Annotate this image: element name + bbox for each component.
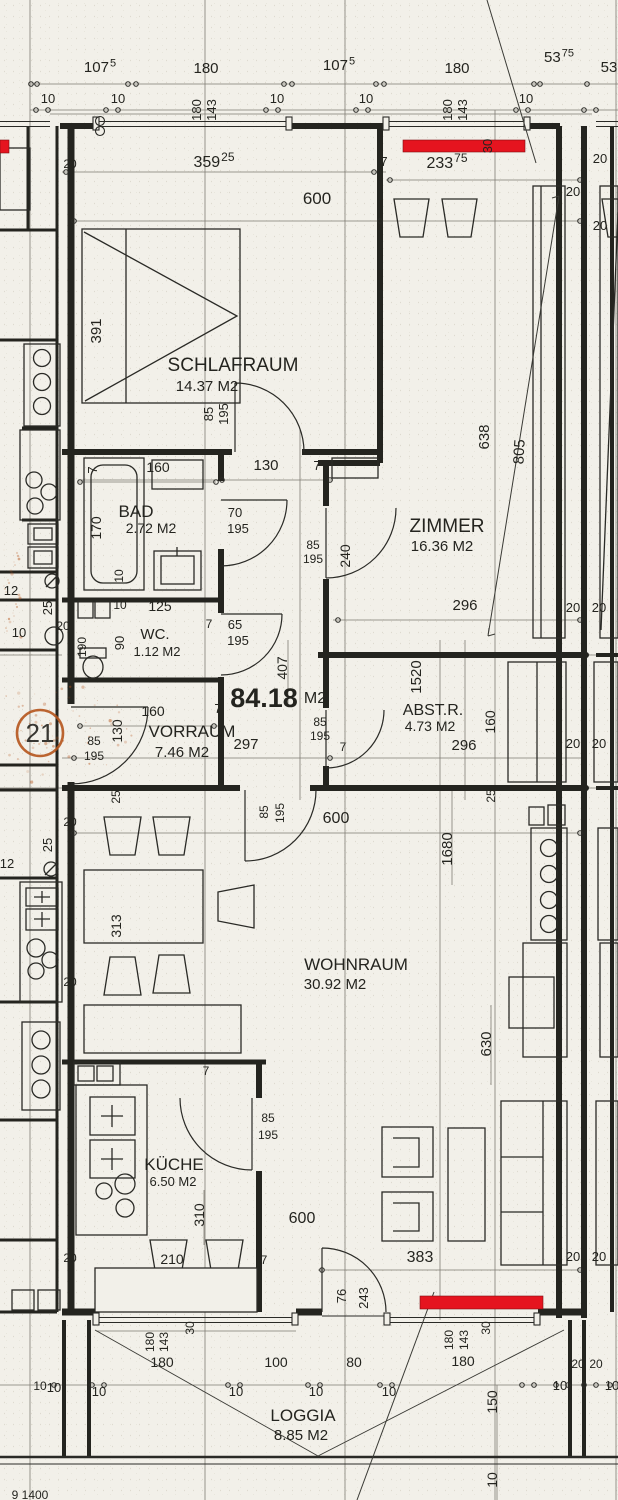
neighbor-right-fixtures (600, 186, 618, 638)
wall-junction-dot (323, 652, 329, 658)
dimension-label: 20 (56, 619, 70, 633)
dimension-label: 10 (113, 598, 127, 612)
dimension-label: 20 (593, 151, 607, 166)
bed (82, 229, 240, 403)
neighbor-left-fixtures (22, 1022, 60, 1110)
window-symbols (534, 1313, 540, 1325)
pencil-speckle (13, 613, 14, 614)
room-area-loggia: 8.85 M2 (274, 1427, 328, 1444)
dimension-label: 170 (88, 516, 104, 540)
pencil-speckle (118, 711, 120, 713)
dimension-label: 7 (340, 740, 347, 754)
window-symbols (292, 1313, 298, 1325)
pencil-speckle (10, 572, 13, 575)
dimension-label: 20 (566, 1249, 580, 1264)
dimension-label: 1075 (84, 57, 116, 76)
dimension-label: 10 (41, 91, 55, 106)
dimension-label: 143 (204, 99, 219, 121)
dimension-label: 12 (0, 856, 14, 871)
dimension-label: 195 (258, 1128, 278, 1142)
room-label-bad: BAD (119, 502, 154, 521)
dimension-label: 25 (40, 838, 55, 852)
window-symbols (96, 127, 105, 136)
dimension-label: 7 (261, 1253, 268, 1267)
shelf-unit (541, 892, 558, 909)
wall-junction-dot (458, 652, 464, 658)
dimension-label: 7 (85, 466, 100, 473)
kitchen-counter (96, 1183, 112, 1199)
dimension-label: 7 (313, 458, 320, 473)
wall-junction-dot (583, 652, 589, 658)
dimension-label: 383 (407, 1249, 434, 1266)
dimension-label: 25 (109, 790, 123, 804)
door-abstellraum (326, 710, 384, 768)
dimension-label: 10 (270, 91, 284, 106)
neighbor-left-fixtures (45, 863, 57, 875)
neighbor-left-fixtures (34, 350, 51, 367)
neighbor-left-fixtures (41, 484, 57, 500)
pencil-speckle (8, 754, 11, 757)
desk (509, 977, 554, 1028)
window-symbols (96, 1316, 538, 1323)
dimension-label: 25 (40, 601, 55, 615)
dimension-label: 85 (201, 407, 216, 421)
dimension-label: 195 (216, 403, 231, 425)
dimension-label: 30 (183, 1321, 197, 1335)
sideboard (84, 1005, 241, 1053)
dimension-label: 5 (110, 57, 116, 69)
coffee-table (448, 1128, 485, 1241)
dimension-label: 7 (380, 154, 387, 169)
pencil-speckle (43, 703, 46, 706)
dimension-label: 7 (217, 458, 224, 473)
shelf-unit (541, 840, 558, 857)
sofa (501, 1101, 543, 1265)
dimension-label: 391 (88, 318, 105, 343)
room-area-abst-r: 4.73 M2 (405, 718, 456, 734)
dimension-label: 10 (519, 91, 533, 106)
dimension-label: 23375 (426, 151, 467, 172)
neighbor-right-fixtures (594, 186, 618, 1265)
pencil-speckle (9, 621, 12, 624)
room-area-schlafraum: 14.37 M2 (176, 378, 239, 395)
dimension-label: 5 (349, 55, 355, 67)
dimension-label: 75 (454, 151, 468, 165)
room-area-wc: 1.12 M2 (134, 644, 181, 659)
dimension-label: 1680 (439, 832, 456, 865)
door-loggia (322, 1248, 386, 1312)
dimension-label: 805 (510, 439, 528, 465)
neighbor-right-fixtures (596, 1101, 618, 1265)
wc-sink (78, 601, 110, 618)
neighbor-left-fixtures (27, 498, 43, 514)
pencil-speckle (60, 687, 63, 690)
dimension-label: 10 (382, 1384, 396, 1399)
kitchen-cabinet (97, 1066, 113, 1081)
toilet (83, 656, 103, 678)
dimension-label: 125 (148, 598, 172, 614)
pencil-speckle (56, 736, 59, 739)
pencil-speckle (10, 570, 13, 573)
dimension-label: 243 (356, 1287, 371, 1309)
room-area-zimmer: 16.36 M2 (411, 538, 474, 555)
pencil-speckle (106, 764, 107, 765)
dimension-label: 35925 (193, 150, 234, 171)
total-area-unit: M2 (304, 690, 326, 707)
dimension-label: 20 (63, 975, 77, 989)
room-label-vorraum: VORRAUM (149, 722, 236, 741)
dimension-label: 160 (482, 710, 498, 734)
dimension-label: 313 (108, 914, 124, 938)
dimension-label: 210 (160, 1251, 184, 1267)
kitchen-cabinet (74, 1062, 120, 1085)
bed (84, 229, 237, 403)
diagonal-dimension-805 (488, 196, 559, 636)
pencil-speckle (81, 686, 84, 689)
neighbor-left-fixtures (32, 1031, 50, 1049)
dimension-label: 7 (203, 1064, 210, 1078)
total-area-value: 84.18 (230, 683, 298, 713)
room-label-zimmer: ZIMMER (410, 516, 485, 537)
dimension-label: 53 (601, 59, 618, 76)
dimension-label: 296 (451, 737, 476, 754)
leader-lines (487, 0, 536, 163)
dimension-label: 143 (157, 1332, 171, 1352)
dimension-label: 20 (63, 1251, 77, 1265)
neighbor-right-fixtures (600, 943, 618, 1057)
dimension-label: 10 (359, 91, 373, 106)
dining-table (84, 870, 203, 943)
neighbor-left-fixtures (34, 891, 50, 903)
dimension-label: 7 (214, 701, 221, 716)
dimension-label: 130 (253, 457, 278, 474)
pencil-speckle (16, 606, 18, 608)
dimension-label: 5375 (544, 47, 574, 66)
kitchen-counter (101, 1105, 123, 1127)
dimension-label: 30 (480, 139, 495, 153)
dimension-label: 85 (87, 734, 101, 748)
dimension-label: 20 (571, 1357, 585, 1371)
shelf-unit (541, 866, 558, 883)
pencil-speckle (130, 735, 132, 737)
door-wohnraum (245, 790, 316, 861)
wc-sink (95, 601, 110, 618)
room-label-k-che: KÜCHE (144, 1155, 204, 1174)
pencil-speckle (30, 780, 33, 783)
dimension-label: 195 (227, 521, 249, 536)
neighbor-left-fixtures (34, 374, 51, 391)
room-label-schlafraum: SCHLAFRAUM (168, 355, 299, 376)
door-schlafraum (235, 383, 304, 452)
dining-table (84, 870, 203, 943)
dimension-label: 1520 (408, 660, 425, 693)
pencil-speckle (97, 700, 98, 701)
dimension-label: 190 (75, 637, 89, 657)
zimmer-chairs (394, 199, 477, 237)
pencil-speckle (16, 552, 18, 554)
dimension-label: 75 (562, 47, 574, 59)
dimension-label: 10 (47, 1380, 61, 1395)
neighbor-right-fixtures (601, 212, 618, 630)
dimension-label: 180 (193, 60, 218, 77)
washbasin (154, 547, 201, 590)
armchairs (393, 1203, 419, 1231)
pencil-speckle (18, 705, 20, 707)
kitchen-counter (115, 1174, 135, 1194)
dimension-label: 20 (592, 736, 606, 751)
zimmer-chairs (332, 199, 477, 478)
kitchen-table (95, 1268, 257, 1312)
dimension-label: 20 (592, 1249, 606, 1264)
coffee-table (448, 1128, 485, 1241)
pencil-speckle (117, 744, 120, 747)
pencil-speckle (15, 603, 17, 605)
dimension-label: 9 1400 (12, 1488, 49, 1500)
dimension-label: 143 (457, 1330, 471, 1350)
pencil-speckle (17, 555, 19, 557)
pencil-speckle (8, 618, 10, 620)
dimension-label: 1075 (323, 55, 355, 74)
pencil-speckle (22, 705, 24, 707)
dimension-label: 25 (484, 789, 498, 803)
dimension-label: 195 (273, 803, 287, 823)
dimension-label: 10 (229, 1384, 243, 1399)
dimension-label: 85 (257, 805, 271, 819)
dimension-label: 180 (442, 1330, 456, 1350)
neighbor-left-fixtures (28, 547, 58, 568)
pencil-speckle (68, 697, 70, 699)
dimension-label: 12 (4, 583, 18, 598)
washbasin (161, 556, 194, 584)
dining-chairs (104, 817, 254, 995)
sideboard (84, 1005, 241, 1053)
pencil-speckle (41, 773, 43, 775)
unit-number-text: 21 (26, 718, 55, 748)
bed (82, 229, 240, 403)
neighbor-left-fixtures (26, 472, 42, 488)
wall-junction-dot (323, 785, 329, 791)
kitchen-counter (76, 1085, 147, 1235)
dimension-label: 10 (309, 1384, 323, 1399)
pencil-speckle (4, 550, 5, 551)
window-symbols (93, 1313, 99, 1325)
room-label-wc: WC. (140, 626, 169, 643)
pencil-speckle (17, 691, 20, 694)
window-symbols (383, 117, 389, 130)
dimension-label: 20 (63, 157, 77, 171)
dimension-label: 600 (323, 810, 350, 827)
dimension-label: 195 (310, 729, 330, 743)
dimension-label: 310 (191, 1203, 207, 1227)
wc-sink (78, 601, 93, 618)
red-marker-wohnraum-window (420, 1296, 543, 1309)
neighbor-left-fixtures (34, 551, 52, 564)
dimension-label: 10 (553, 1378, 567, 1393)
pencil-speckle (90, 727, 92, 729)
room-label-wohnraum: WOHNRAUM (304, 955, 408, 974)
room-area-vorraum: 7.46 M2 (155, 744, 209, 761)
wall-junction-dot (202, 449, 208, 455)
pencil-speckle (13, 615, 14, 616)
walls-main-apartment (60, 126, 586, 1456)
neighbor-left-fixtures (0, 148, 30, 210)
room-label-abst-r: ABST.R. (403, 702, 463, 719)
dimension-label: 10 (111, 91, 125, 106)
text-labels: 1075180107518053755310101801431010180143… (0, 47, 618, 1500)
neighbor-left-fixtures (34, 398, 51, 415)
neighbor-left-fixtures (12, 1290, 34, 1310)
dimension-label: 195 (84, 749, 104, 763)
walls-party-walls (0, 126, 618, 1318)
dimension-label: 20 (589, 1357, 603, 1371)
dimension-label: 10 (33, 1379, 47, 1393)
shelf-unit (529, 807, 544, 825)
dimension-label: 180 (451, 1353, 475, 1369)
dimension-label: 180 (440, 99, 455, 121)
room-area-k-che: 6.50 M2 (150, 1174, 197, 1189)
armchairs (382, 1127, 433, 1177)
pencil-speckle (88, 763, 90, 765)
dimension-label: 638 (476, 424, 493, 449)
walls-party-walls (559, 126, 584, 1318)
armchairs (393, 1138, 419, 1167)
window-symbols (524, 117, 530, 130)
dimension-label: 630 (478, 1031, 495, 1056)
pencil-speckle (78, 715, 80, 717)
pencil-speckle (26, 770, 29, 773)
room-label-loggia: LOGGIA (270, 1406, 336, 1425)
dimension-label: 20 (63, 815, 77, 829)
dimension-label: 296 (452, 597, 477, 614)
shelf-unit (541, 916, 558, 933)
pencil-speckle (48, 761, 50, 763)
floorplan-drawing: 21 1075180107518053755310101801431010180… (0, 0, 618, 1500)
window-symbols (286, 117, 292, 130)
pencil-speckle (7, 579, 9, 581)
dimension-label: 20 (593, 218, 607, 233)
kitchen-counter (101, 1148, 123, 1170)
dimension-label: 20 (566, 600, 580, 615)
dimension-label: 7 (206, 617, 213, 631)
dimension-label: 80 (346, 1354, 362, 1370)
dimension-label: 65 (228, 617, 242, 632)
pencil-speckle (13, 561, 14, 562)
dimension-label: 240 (337, 544, 353, 568)
pencil-speckle (72, 710, 73, 711)
dimension-label: 10 (484, 1472, 500, 1488)
neighbor-left-fixtures (34, 528, 52, 540)
dimension-label: 85 (261, 1111, 275, 1125)
dimension-label: 30 (479, 1321, 493, 1335)
dimension-label: 180 (189, 99, 204, 121)
neighbor-right-fixtures (594, 662, 618, 782)
dimension-label: 20 (592, 600, 606, 615)
dimension-label: 85 (313, 715, 327, 729)
pencil-speckle (55, 692, 57, 694)
wall-junction-dot (583, 785, 589, 791)
dimension-label: 90 (112, 636, 127, 650)
floorplan-page: 21 1075180107518053755310101801431010180… (0, 0, 618, 1500)
dimension-label: 180 (150, 1354, 174, 1370)
pencil-speckle (5, 695, 6, 696)
dining-chairs (104, 817, 254, 995)
armchairs (382, 1127, 433, 1241)
window-symbols (384, 1313, 390, 1325)
neighbor-right-fixtures (598, 828, 618, 940)
armchairs (382, 1192, 433, 1241)
room-area-wohnraum: 30.92 M2 (304, 976, 367, 993)
dimension-label: 10 (605, 1378, 618, 1393)
dimension-label: 160 (141, 703, 165, 719)
neighbor-left-fixtures (24, 344, 60, 426)
kitchen-cabinet (78, 1066, 94, 1081)
dimension-label: 25 (221, 150, 235, 164)
dimension-label: 195 (227, 633, 249, 648)
door-entry (71, 707, 148, 784)
neighbor-left-fixtures (32, 1080, 50, 1098)
kitchen-counter (116, 1199, 134, 1217)
room-area-bad: 2.72 M2 (126, 520, 177, 536)
dimension-label: 600 (303, 189, 331, 208)
pencil-speckle (51, 749, 52, 750)
dimension-label: 150 (484, 1390, 500, 1414)
dimension-label: 297 (233, 736, 258, 753)
dimension-label: 195 (303, 552, 323, 566)
dimension-label: 143 (455, 99, 470, 121)
pencil-speckle (94, 704, 96, 706)
dimension-label: 100 (264, 1354, 288, 1370)
pencil-speckle (6, 630, 8, 632)
dimension-label: 70 (228, 505, 242, 520)
dimension-label: 76 (334, 1289, 349, 1303)
dimension-label: 600 (289, 1210, 316, 1227)
pencil-speckle (126, 728, 127, 729)
pencil-speckle (34, 693, 35, 694)
neighbor-left-fixtures (32, 1056, 50, 1074)
dimension-label: 407 (274, 656, 290, 680)
pencil-speckle (18, 558, 21, 561)
dimension-label: 160 (146, 459, 170, 475)
pencil-speckle (35, 714, 38, 717)
pencil-speckle (85, 722, 86, 723)
dimension-label: 180 (143, 1332, 157, 1352)
dimension-label: 20 (566, 184, 580, 199)
pencil-speckle (14, 564, 16, 566)
kitchen-table (95, 1268, 257, 1312)
neighbor-left-fixtures (34, 912, 50, 927)
dimension-label: 85 (306, 538, 320, 552)
pencil-speckle (20, 730, 22, 732)
dimension-label: 20 (566, 736, 580, 751)
dimension-label: 130 (109, 719, 125, 743)
pencil-speckle (17, 758, 19, 760)
red-marker-left-edge (0, 140, 9, 153)
neighbor-left-fixtures (28, 524, 58, 544)
pencil-speckle (67, 755, 70, 758)
pencil-speckle (69, 686, 71, 688)
dimension-label: 10 (92, 1384, 106, 1399)
dimension-label: 10 (12, 625, 26, 640)
pencil-speckle (5, 627, 7, 629)
pencil-speckle (116, 704, 118, 706)
dimension-label: 180 (444, 60, 469, 77)
dimension-label: 10 (112, 569, 126, 583)
pencil-speckle (19, 597, 22, 600)
